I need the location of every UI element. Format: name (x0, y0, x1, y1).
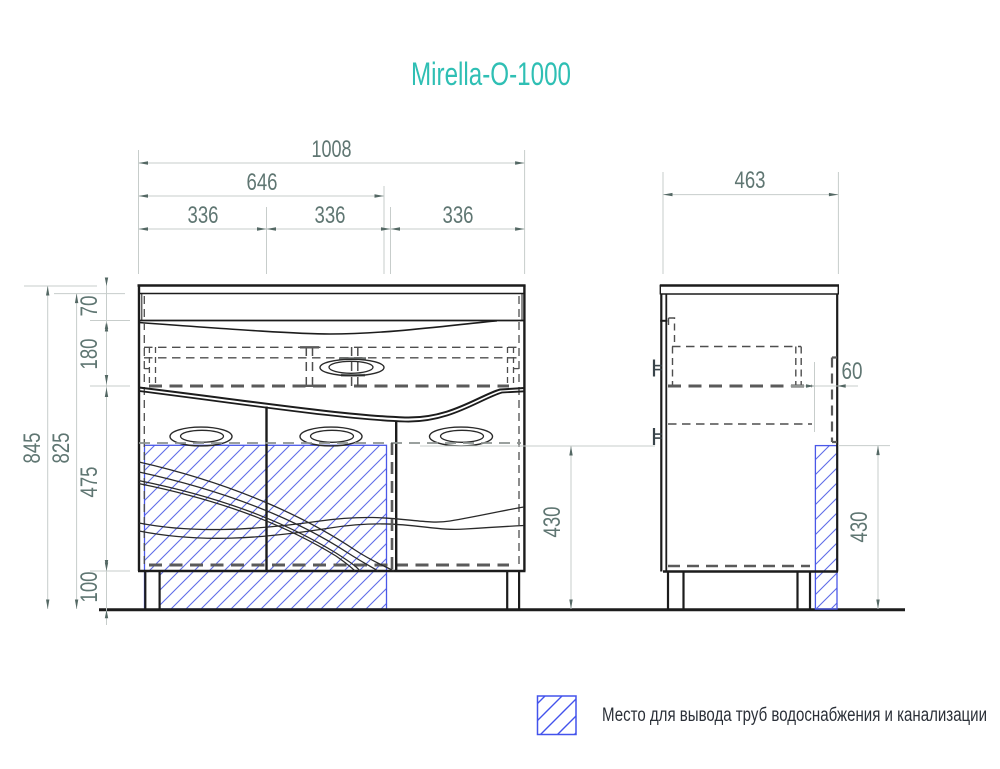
svg-text:336: 336 (443, 202, 474, 229)
svg-text:180: 180 (76, 339, 103, 370)
svg-text:646: 646 (247, 169, 278, 196)
svg-text:1008: 1008 (312, 136, 352, 163)
svg-text:Место для вывода труб водоснаб: Место для вывода труб водоснабжения и ка… (602, 705, 987, 726)
svg-text:430: 430 (846, 512, 873, 543)
svg-text:475: 475 (76, 467, 103, 498)
svg-text:430: 430 (539, 507, 566, 538)
svg-text:336: 336 (188, 202, 219, 229)
svg-text:845: 845 (19, 433, 46, 464)
svg-text:60: 60 (842, 358, 863, 385)
svg-text:463: 463 (735, 167, 766, 194)
svg-text:100: 100 (76, 572, 103, 603)
svg-text:825: 825 (48, 433, 75, 464)
svg-text:Mirella-O-1000: Mirella-O-1000 (411, 56, 571, 92)
svg-text:336: 336 (315, 202, 346, 229)
svg-text:70: 70 (76, 296, 103, 317)
